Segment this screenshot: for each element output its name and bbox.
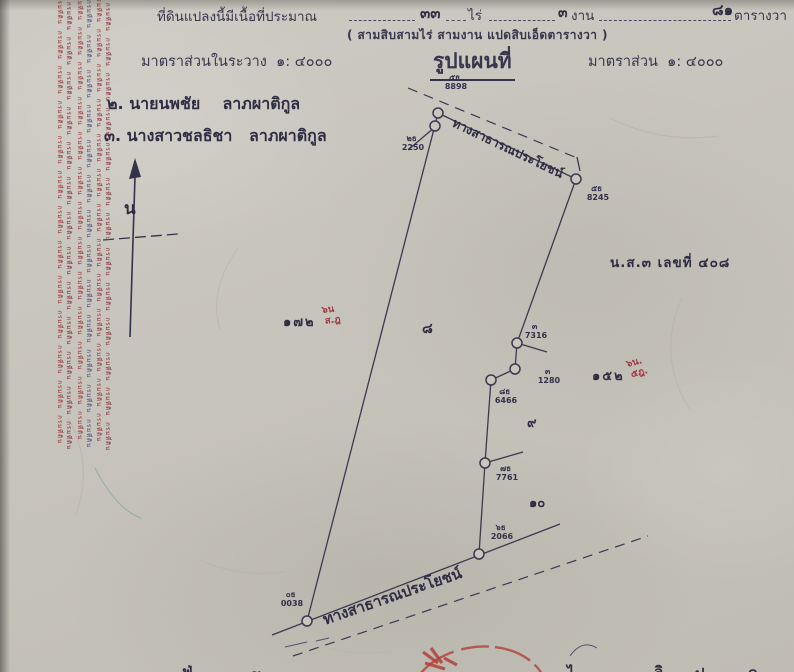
road-bottom-dashed-edge — [293, 536, 648, 656]
north-cross-bar — [103, 234, 178, 240]
ns3-deed-note: น.ส.๓ เลขที่ ๔๐๘ — [610, 252, 730, 271]
north-label: น — [124, 199, 136, 219]
marker-label-7316: ๓ 7316 — [525, 322, 548, 340]
marker-label-2250: ๒ธ 2250 — [402, 134, 425, 152]
survey-marker-circle — [302, 616, 312, 626]
survey-marker-circle — [480, 458, 490, 468]
survey-marker-circle — [512, 338, 522, 348]
lot-number-8: ๘ — [422, 321, 433, 337]
marker-label-8898: ๕ธ 8898 — [445, 73, 468, 91]
survey-marker-circle — [430, 121, 440, 131]
parcel-boundary-lines — [272, 113, 580, 635]
marker-label-2066: ๖ธ 2066 — [491, 523, 514, 541]
marker-label-0038: ๐ธ 0038 — [281, 590, 304, 608]
boundary-east — [479, 179, 576, 554]
survey-marker-circle — [571, 174, 581, 184]
marker-label-8245: ๕ธ 8245 — [587, 184, 610, 202]
survey-marker-circle — [510, 364, 520, 374]
marker-label-6466: ๘ธ 6466 — [495, 387, 518, 405]
watermark-stamp-column: กรมที่ดิน กรมที่ดิน กรมที่ดิน กรมที่ดิน … — [63, 2, 73, 672]
north-arrow-head — [129, 158, 141, 179]
road-name-bottom: ทางสาธารณประโยชน์ — [320, 563, 465, 629]
survey-marker-circles — [302, 108, 581, 626]
adjacent-boundary-spur — [485, 452, 523, 463]
watermark-stamp-column: กรมที่ดิน กรมที่ดิน กรมที่ดิน กรมที่ดิน … — [83, 0, 93, 672]
pencil-dash-marks — [285, 638, 597, 656]
paper-crease-marks — [68, 118, 718, 653]
marker-label-7761: ๗ธ 7761 — [496, 464, 519, 482]
adjacent-parcel-number-left: ๑๗๒ — [283, 315, 316, 330]
clipped-text-fragment: ด — [329, 664, 339, 672]
clipped-text-fragment: ข — [251, 663, 261, 672]
clipped-text-fragment: ด — [748, 661, 758, 672]
survey-marker-labels: ๕ธ 8898 ๒ธ 2250 ๕ธ 8245 ๓ 7316 ๓ 1280 ๘ธ… — [281, 73, 610, 608]
land-deed-map-page: ที่ดินแปลงนี้มีเนื้อที่ประมาณ ๓๓ ไร่ ๓ ง… — [0, 0, 794, 672]
marker-label-1280: ๓ 1280 — [538, 367, 561, 385]
adjacent-parcel-number-right: ๑๕๒ — [592, 369, 625, 384]
survey-map-canvas: น — [0, 0, 794, 672]
watermark-stamp-column: กรมที่ดิน กรมที่ดิน กรมที่ดิน กรมที่ดิน … — [102, 3, 112, 672]
svg-text:ส.ฎ: ส.ฎ — [324, 314, 341, 327]
lot-number-10: ๑๐ — [529, 496, 545, 511]
boundary-west — [307, 125, 435, 621]
clipped-text-fragment: ลิ — [654, 660, 663, 672]
adjacent-parcel-red-note-right: ๖น. ๕ฎ. — [624, 355, 649, 381]
lot-number-9: ๙ — [527, 416, 537, 431]
north-arrow: น — [103, 158, 178, 337]
red-stamp-partial — [401, 637, 556, 672]
adjacent-parcel-red-note-left: ๖น ส.ฎ — [320, 303, 341, 327]
road-name-top: ทางสาธารณประโยชน์ — [450, 115, 566, 181]
clipped-text-fragment: ฟ่ — [182, 660, 193, 672]
clipped-text-fragment: ป — [695, 662, 705, 672]
survey-marker-circle — [486, 375, 496, 385]
survey-marker-circle — [474, 549, 484, 559]
survey-marker-circle — [433, 108, 443, 118]
clipped-text-fragment: ไ — [567, 661, 575, 672]
road-width-tick — [577, 157, 580, 171]
